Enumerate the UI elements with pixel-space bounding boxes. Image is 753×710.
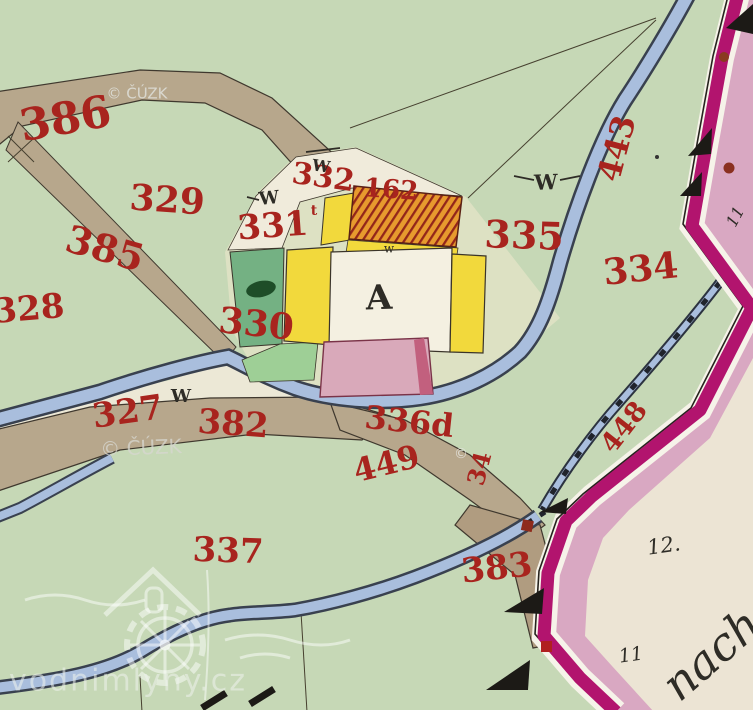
building-label-162: 162 [363,173,419,207]
parcel-label-334: 334 [601,244,680,294]
parcel-label-383: 383 [459,544,534,591]
parcel-label-328: 328 [0,286,66,332]
red-dot-marker [719,52,729,62]
parcel-label-330: 330 [217,299,296,349]
sheet-number-12: 12. [646,531,682,559]
copyright-watermark-dot: © [454,446,468,462]
parcel-label-335: 335 [484,211,565,259]
parcel-label-382: 382 [196,402,270,447]
red-dot-marker [724,163,735,174]
cadastral-map: 386 329 385 328 330 331 t 332 162 335 33… [0,0,753,710]
courtyard-letter-A: A [364,278,393,319]
meadow-w-mark: W [257,187,281,210]
cuzk-watermark-middle: © ČÚZK [100,434,183,461]
vodnimlyny-watermark: vodnimlyny.cz [9,664,247,699]
meadow-w-mark: W [533,169,559,195]
parcel-label-329: 329 [128,176,206,223]
red-square-marker [521,519,534,532]
meadow-w-mark: W [170,386,192,407]
parcel-label-331-sup: t [311,203,318,219]
cadastral-map-svg: 386 329 385 328 330 331 t 332 162 335 33… [0,0,753,710]
logo-wheel-hub [160,640,170,650]
small-dot [655,155,659,159]
parcel-label-331: 331 [236,204,310,249]
small-w-mark: w [384,242,395,256]
yellow-building-east [450,254,486,353]
red-square-marker [541,641,552,652]
sheet-number-11: 11 [617,642,644,667]
cuzk-watermark-top: © ČÚZK [106,84,168,103]
parcel-label-337: 337 [192,530,264,572]
meadow-w-mark: W [310,155,332,177]
